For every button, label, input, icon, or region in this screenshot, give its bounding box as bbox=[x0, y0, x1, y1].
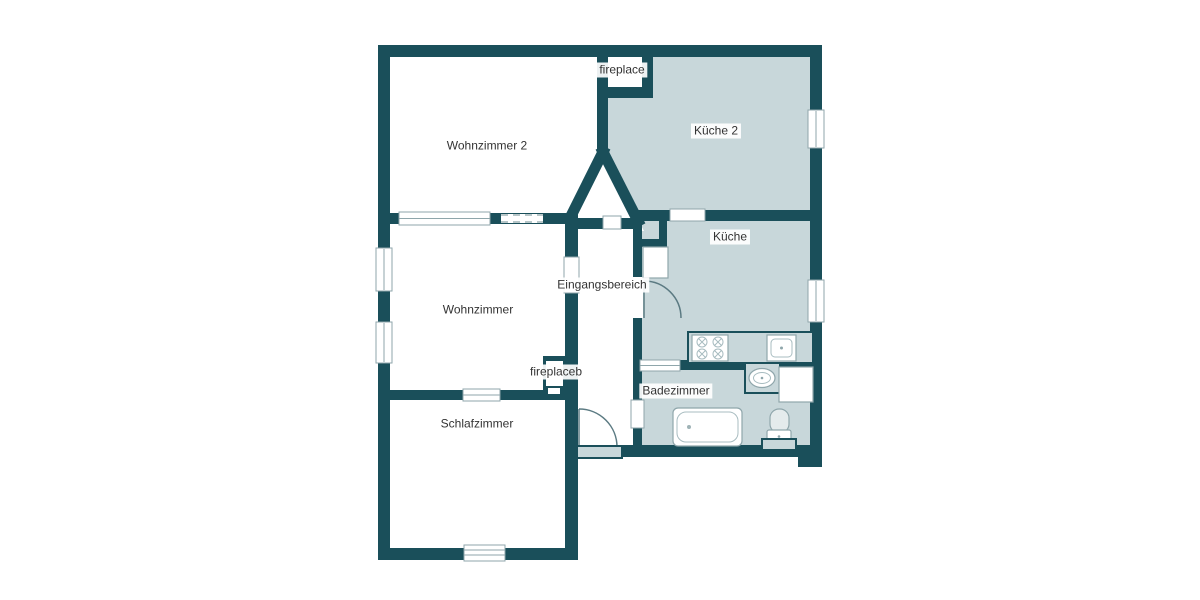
entrance-door-icon bbox=[577, 409, 622, 458]
refrigerator-icon bbox=[643, 247, 668, 278]
room-label-kueche: Küche bbox=[710, 230, 750, 245]
washbasin-icon bbox=[745, 363, 780, 393]
kitchen-sink-icon bbox=[767, 335, 796, 361]
bathtub-icon bbox=[673, 408, 742, 446]
room-label-kueche-2: Küche 2 bbox=[691, 124, 741, 139]
bathtub-drain bbox=[687, 425, 691, 429]
window-icon bbox=[464, 545, 505, 561]
room-label-badezimmer: Badezimmer bbox=[639, 384, 712, 399]
washing-machine-icon bbox=[779, 367, 813, 402]
sink-drain bbox=[780, 347, 783, 350]
stove-body bbox=[692, 335, 728, 361]
wall-opening bbox=[603, 216, 621, 229]
room-label-fireplace: fireplace bbox=[596, 63, 647, 78]
wall-fireplace-bottom bbox=[597, 87, 653, 98]
entrance-threshold bbox=[577, 446, 622, 458]
window-icon bbox=[631, 400, 644, 428]
room-label-wohnzimmer: Wohnzimmer bbox=[440, 303, 516, 318]
toilet-button bbox=[778, 435, 781, 438]
room-label-schlafzimmer: Schlafzimmer bbox=[438, 417, 517, 432]
room-label-wohnzimmer-2: Wohnzimmer 2 bbox=[444, 139, 530, 154]
wall-corner-step bbox=[798, 455, 822, 467]
stove-icon bbox=[692, 335, 728, 361]
room-label-eingangsbereich: Eingangsbereich bbox=[554, 278, 649, 293]
bathtub-rim bbox=[673, 408, 742, 446]
door-swing-arc bbox=[579, 409, 617, 447]
toilet-platform bbox=[762, 439, 796, 450]
washbasin-drain bbox=[761, 377, 764, 380]
wall-opening bbox=[670, 209, 705, 221]
wall-kueche-niche-bottom bbox=[642, 239, 667, 247]
fireplaceb-notch bbox=[548, 388, 560, 394]
floorplan-canvas: fireplace Wohnzimmer 2 Küche 2 Küche Ein… bbox=[0, 0, 1200, 600]
wall-outer-left bbox=[378, 45, 390, 560]
room-label-fireplaceb: fireplaceb bbox=[527, 365, 585, 380]
floorplan-drawing bbox=[0, 0, 1200, 600]
